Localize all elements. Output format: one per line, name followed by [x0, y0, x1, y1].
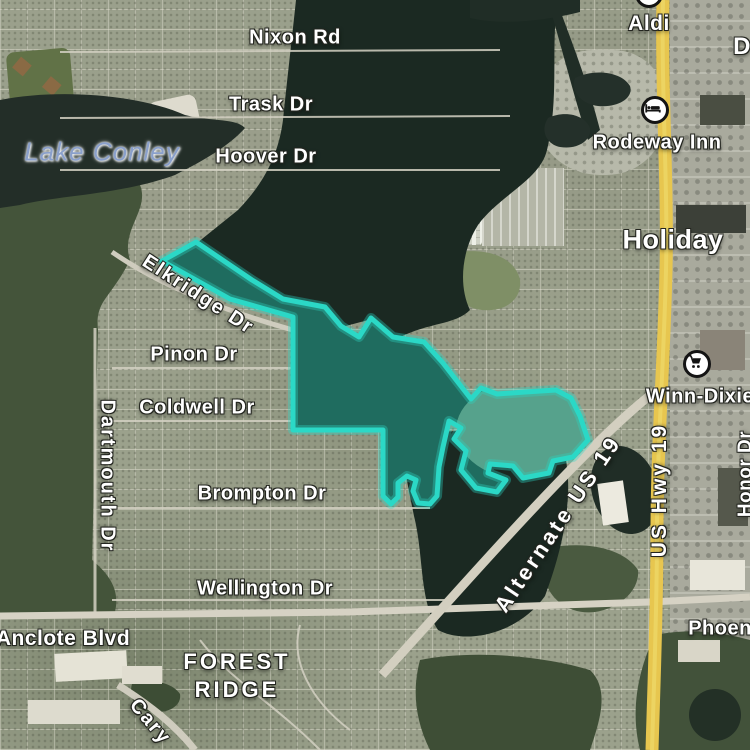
neighborhood-label-forest: FOREST [183, 649, 290, 675]
selection-polygon[interactable] [162, 242, 588, 504]
satellite-map[interactable]: Nixon Rd Trask Dr Hoover Dr Lake Conley … [0, 0, 750, 750]
neighborhood-label-ridge: RIDGE [195, 677, 280, 703]
road-label-honor-dr: Honor Dr [735, 431, 750, 517]
road-label-pinon-dr: Pinon Dr [150, 344, 237, 367]
water-label-lake-conley: Lake Conley [24, 137, 180, 168]
road-label-trask-dr: Trask Dr [229, 94, 313, 117]
road-label-us-hwy-19: US Hwy 19 [648, 423, 672, 557]
road-label-brompton-dr: Brompton Dr [198, 483, 327, 506]
shopping-cart-icon[interactable] [683, 350, 711, 378]
poi-label-winn-dixie[interactable]: Winn-Dixie [646, 386, 750, 409]
road-label-nixon-rd: Nixon Rd [249, 27, 341, 50]
road-label-anclote-blvd: Anclote Blvd [0, 627, 130, 651]
road-label-wellington-dr: Wellington Dr [197, 578, 333, 601]
bed-icon[interactable] [641, 96, 669, 124]
bed-glyph [644, 99, 662, 117]
poi-label-rodeway-inn[interactable]: Rodeway Inn [593, 132, 722, 155]
poi-label-aldi[interactable]: Aldi [628, 12, 670, 36]
road-label-hoover-dr: Hoover Dr [215, 146, 316, 169]
road-label-dartmouth-dr: Dartmouth Dr [96, 400, 119, 553]
city-label-holiday[interactable]: Holiday [622, 225, 723, 256]
cart-glyph [686, 353, 704, 371]
road-label-coldwell-dr: Coldwell Dr [139, 397, 255, 420]
poi-label-phoenix-partial: Phoen [688, 618, 750, 641]
label-d-partial: D [733, 33, 750, 61]
